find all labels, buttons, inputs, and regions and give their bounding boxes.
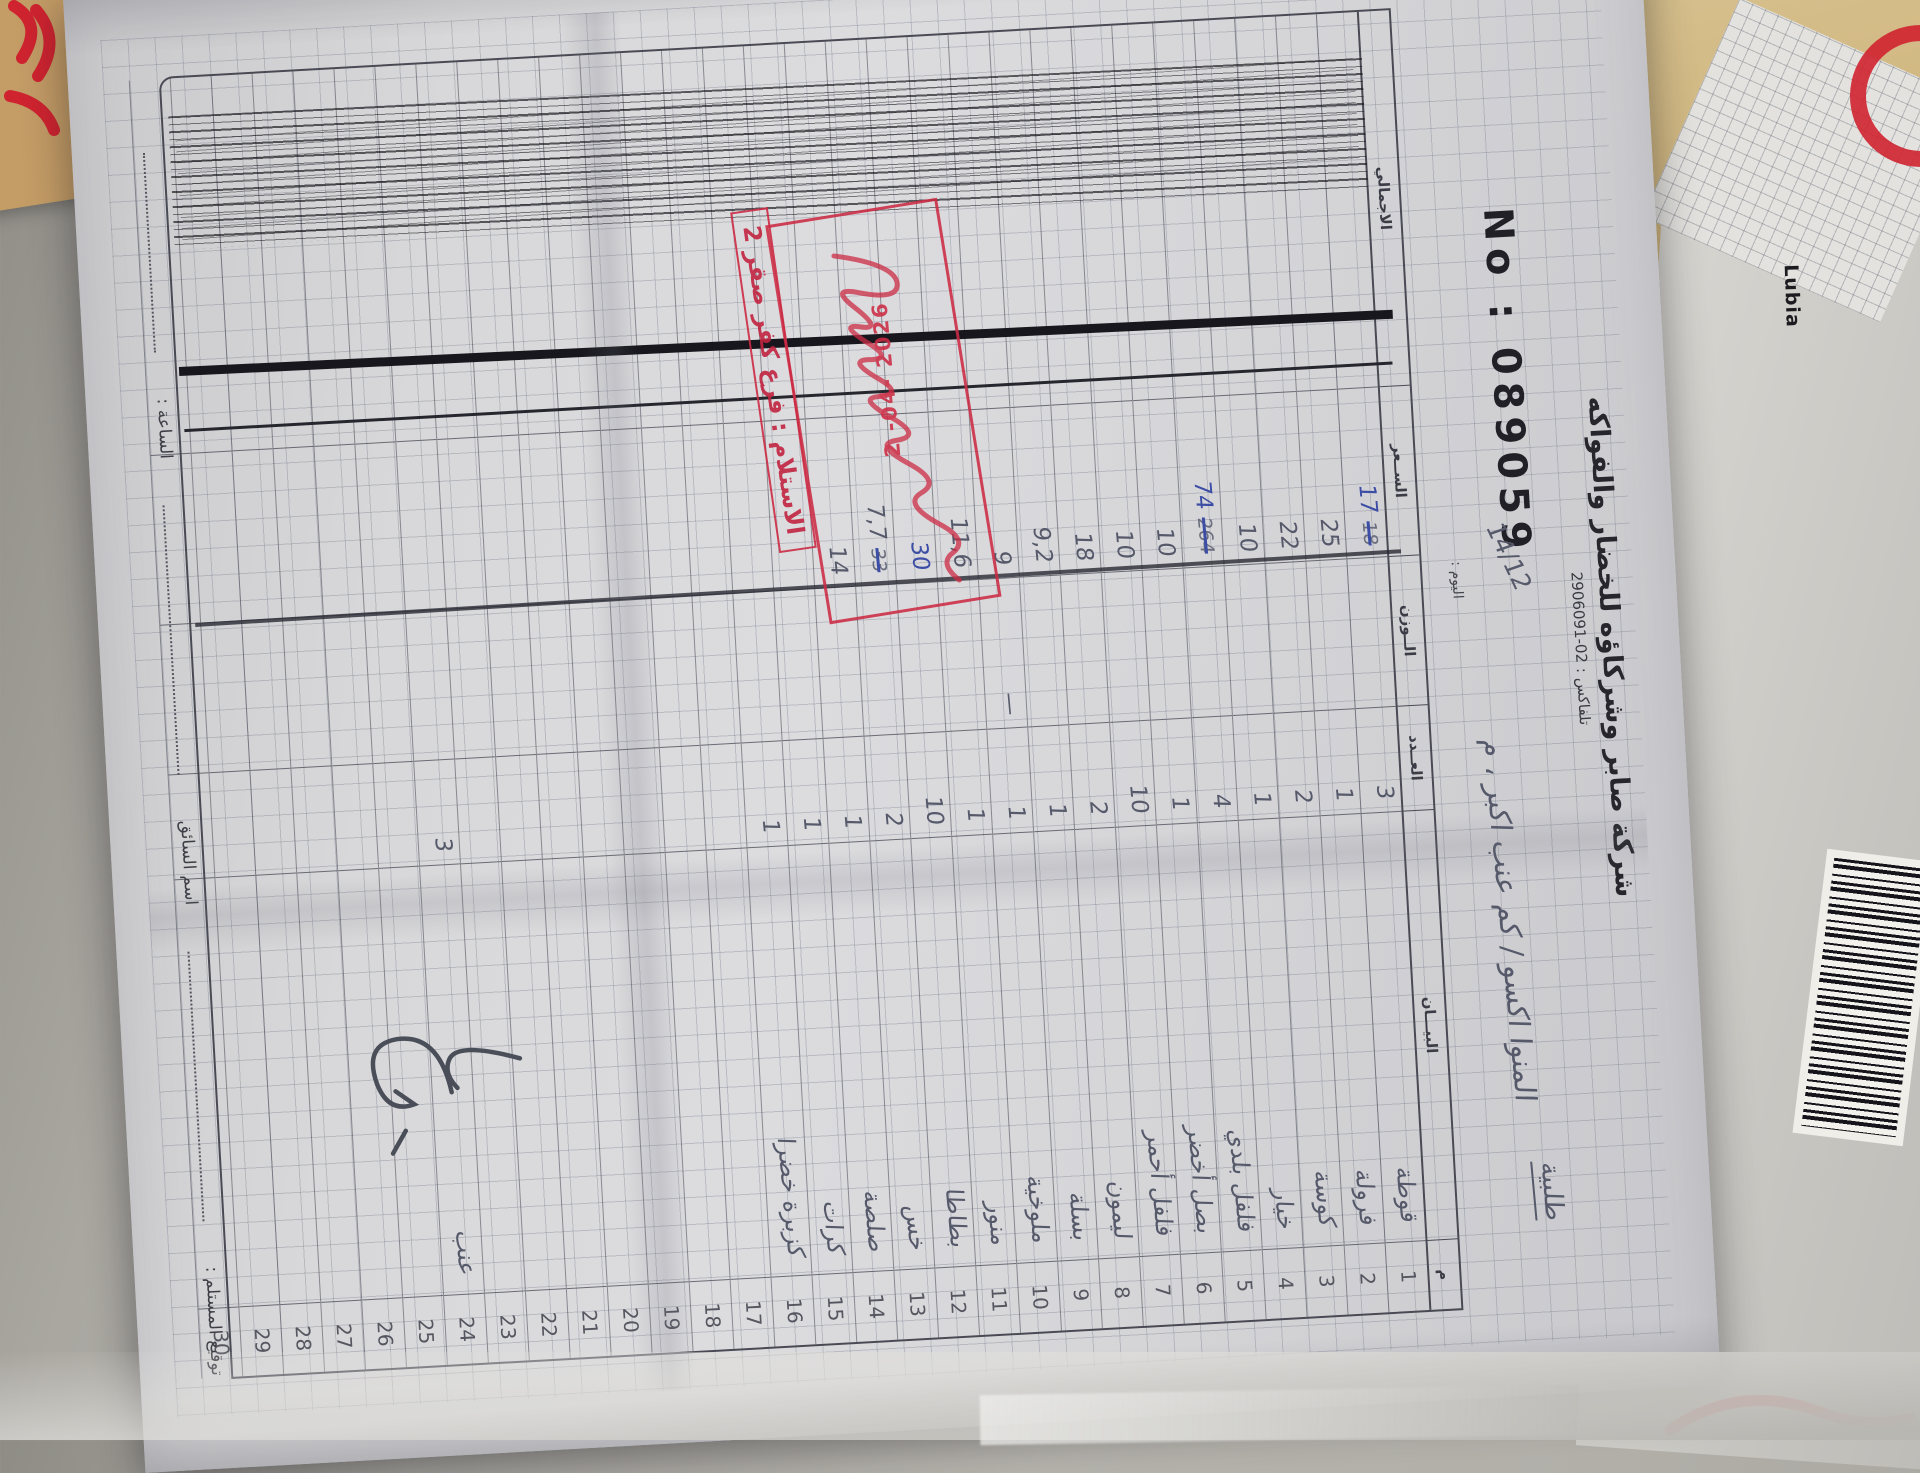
row-number: 16: [772, 1274, 816, 1346]
table-row: 8ليمون218: [1029, 28, 1143, 1328]
item-qty: [209, 770, 255, 877]
document-footer: توقيع المستلم : اسم السائق الساعة :: [135, 77, 228, 1376]
item-qty: 2: [1069, 722, 1115, 829]
table-row: 11منور111,6: [907, 35, 1021, 1335]
item-price: 25: [1297, 389, 1346, 561]
photo-of-invoice: { "company": { "name": "شركة صابر وشركاؤ…: [0, 0, 1920, 1440]
plastic-bag: [0, 1352, 1920, 1440]
row-number: 14: [853, 1270, 897, 1342]
pen-line-thick: [179, 310, 1393, 376]
item-total: [744, 44, 805, 421]
row-number: 17: [731, 1277, 775, 1349]
item-weight: [1184, 565, 1232, 717]
item-weight: [610, 597, 658, 749]
item-total: [334, 67, 395, 444]
item-weight: [856, 584, 904, 736]
item-total: [908, 35, 969, 412]
row-number: 4: [1263, 1247, 1307, 1319]
item-qty: [496, 754, 542, 861]
row-number: 13: [894, 1268, 938, 1340]
row-number: 6: [1181, 1252, 1225, 1324]
item-qty: [169, 772, 215, 879]
item-total: [989, 30, 1050, 407]
item-description: خس: [870, 838, 934, 1270]
recipient-signature: [334, 938, 537, 1178]
row-number: 2: [1345, 1242, 1389, 1314]
item-qty: 1: [1233, 713, 1279, 820]
item-weight: [938, 579, 986, 731]
table-row: 9بسلة19,2: [988, 30, 1102, 1330]
row-number: 11: [976, 1263, 1020, 1335]
item-qty: [619, 747, 665, 854]
item-price: [192, 450, 241, 622]
item-description: بطاطا: [911, 836, 975, 1268]
item-price: 7,733: [847, 414, 896, 586]
row-number: 8: [1099, 1256, 1143, 1328]
item-total: [1071, 26, 1132, 403]
item-price: [478, 434, 527, 606]
item-qty: 1: [1028, 724, 1074, 831]
row-number: 15: [812, 1272, 856, 1344]
driver-name-label: اسم السائق: [176, 820, 201, 906]
table-row: 7فلفل أحمر1010: [1070, 26, 1184, 1326]
table-row: 30: [129, 78, 243, 1378]
item-description: [502, 859, 566, 1291]
item-weight: [365, 611, 413, 763]
company-name: شركة صابر وشركاؤه للخضار والفواكه: [1557, 0, 1665, 1337]
item-price: 10: [1215, 393, 1264, 565]
item-price: [601, 428, 650, 600]
item-total: [212, 74, 273, 451]
item-qty: 1: [783, 738, 829, 845]
item-qty: 1: [1151, 717, 1197, 824]
pen-scribble-column: [168, 58, 1368, 248]
row-number: 21: [567, 1286, 611, 1358]
item-total: [1030, 28, 1091, 405]
table-row: 1قوطة31718: [1316, 12, 1430, 1312]
item-total: [867, 37, 928, 414]
table-row: 20: [538, 55, 652, 1355]
item-price: 11,6: [928, 409, 977, 581]
item-description: ليمون: [1075, 827, 1139, 1259]
dotted-line: [187, 951, 218, 1221]
item-weight: [1143, 568, 1191, 720]
item-description: [215, 875, 279, 1307]
item-price: 74264: [1174, 396, 1223, 568]
item-qty: 2: [864, 733, 910, 840]
item-total: [580, 53, 641, 430]
item-description: [174, 877, 238, 1309]
item-total: [826, 39, 887, 416]
item-weight: [447, 606, 495, 758]
item-qty: [660, 745, 706, 852]
item-qty: 10: [1110, 720, 1156, 827]
item-qty: [578, 749, 624, 856]
col-qty: العــدد: [1398, 704, 1434, 811]
item-description: [707, 847, 771, 1279]
item-total: [171, 76, 232, 453]
item-weight: [774, 588, 822, 740]
table-row: 19: [579, 53, 693, 1353]
item-description: صلصة: [829, 840, 893, 1272]
row-number: 3: [1304, 1245, 1348, 1317]
table-row: 3كوسة222: [1234, 17, 1348, 1317]
item-weight: [897, 581, 945, 733]
table-row: 27: [252, 71, 366, 1371]
item-price: [396, 439, 445, 611]
col-price: الســعر: [1380, 385, 1419, 556]
item-qty: 2: [1274, 710, 1320, 817]
item-total: [948, 33, 1009, 410]
item-description: ملوخية: [993, 831, 1057, 1263]
item-weight: [733, 590, 781, 742]
item-weight: [1102, 570, 1150, 722]
table-row: 17: [661, 49, 775, 1349]
item-total: [130, 78, 191, 455]
row-number: 10: [1017, 1261, 1061, 1333]
table-header-row: م البيـــان العــدد الــوزن الســعر الاج…: [1357, 10, 1462, 1310]
item-price: [151, 453, 200, 625]
item-qty: 1: [987, 727, 1033, 834]
table-row: 29: [170, 76, 284, 1376]
item-description: قوطة: [1362, 811, 1426, 1243]
row-number: 1: [1386, 1240, 1430, 1312]
item-price: 9: [969, 407, 1018, 579]
item-description: فلفل بلدي: [1198, 820, 1262, 1252]
item-price: [765, 418, 814, 590]
handwritten-order-word: طلبية: [1530, 1162, 1570, 1222]
item-price: [560, 430, 609, 602]
item-total: [785, 42, 846, 419]
row-number: 9: [1058, 1258, 1102, 1330]
item-total: [1317, 12, 1378, 389]
item-weight: [1265, 561, 1313, 713]
item-description: فلفل أحمر: [1116, 824, 1180, 1256]
table-row: 28: [211, 74, 325, 1374]
plastic-bag-highlight: [980, 1385, 1581, 1445]
item-weight: [570, 600, 618, 752]
item-total: [1112, 23, 1173, 400]
item-qty: 3: [414, 759, 460, 866]
item-weight: [1306, 558, 1354, 710]
item-price: [437, 437, 486, 609]
item-description: [543, 857, 607, 1289]
item-qty: 4: [1192, 715, 1238, 822]
row-number: 12: [935, 1265, 979, 1337]
table-row: 15كرات1: [743, 44, 857, 1344]
pen-scribble-column-2: [175, 58, 1360, 250]
item-description: بصل أخضر: [1157, 822, 1221, 1254]
table-row: 4خيار110: [1193, 19, 1307, 1319]
handwritten-customer-line: المنوا اكسو / كم عنب اكبر ، م: [1440, 345, 1543, 1103]
item-description: عنب: [420, 863, 484, 1295]
day-label: اليوم :: [1448, 561, 1466, 599]
item-description: خيار: [1239, 818, 1303, 1250]
table-row: 24عنب3: [374, 65, 488, 1365]
item-total: [416, 62, 477, 439]
item-qty: [250, 768, 296, 875]
item-weight: [1224, 563, 1272, 715]
item-weight: [1020, 574, 1068, 726]
col-serial: م: [1427, 1238, 1461, 1310]
table-row: 5فلفل بلدي474264: [1152, 21, 1266, 1321]
scrap-label: Lubia: [1780, 264, 1804, 328]
item-weight: [651, 595, 699, 747]
company-phone: تلفاكس : 02-2906091: [1533, 0, 1628, 1338]
row-number: 18: [690, 1279, 734, 1351]
time-label: الساعة :: [153, 398, 176, 460]
row-number: 20: [608, 1284, 652, 1356]
table-row: 25: [333, 67, 447, 1367]
item-total: [253, 71, 314, 448]
item-weight: [488, 604, 536, 756]
table-row: 13خس27,733: [825, 39, 939, 1339]
table-row: 21: [497, 58, 611, 1358]
dotted-line-3: [143, 152, 170, 353]
item-description: فرولة: [1321, 813, 1385, 1245]
item-weight: [692, 593, 740, 745]
item-qty: [332, 763, 378, 870]
item-qty: 10: [905, 731, 951, 838]
item-total: [1276, 14, 1337, 391]
item-description: [379, 866, 443, 1298]
item-total: [703, 46, 764, 423]
item-price: 18: [1051, 402, 1100, 574]
table-row: 22: [456, 60, 570, 1360]
item-description: كزبرة خضرا: [748, 845, 812, 1277]
item-weight: —: [979, 577, 1027, 729]
item-qty: 3: [1356, 706, 1402, 813]
item-price: [683, 423, 732, 595]
table-row: 23: [415, 62, 529, 1362]
item-description: [297, 870, 361, 1302]
item-price: [233, 448, 282, 620]
item-price: 10: [1092, 400, 1141, 572]
item-description: [584, 854, 648, 1286]
item-qty: [291, 765, 337, 872]
item-total: [293, 69, 354, 446]
item-total: [1153, 21, 1214, 398]
item-description: كوسة: [1280, 815, 1344, 1247]
item-weight: [201, 620, 249, 772]
table-row: 10ملوخية1—9: [947, 33, 1061, 1333]
stamp-signature-script: [778, 209, 998, 620]
table-row: 18: [620, 51, 734, 1351]
pen-line-price-border: [195, 549, 1401, 627]
row-number: 7: [1140, 1254, 1184, 1326]
item-price: 9,2: [1010, 405, 1059, 577]
item-description: [256, 873, 320, 1305]
row-number: 19: [649, 1281, 693, 1353]
item-price: 22: [1256, 391, 1305, 563]
item-weight: [1347, 556, 1395, 708]
item-weight: [242, 618, 290, 770]
item-weight: [406, 609, 454, 761]
col-desc: البيـــان: [1403, 809, 1457, 1240]
item-qty: 1: [946, 729, 992, 836]
item-description: [461, 861, 525, 1293]
item-description: كرات: [788, 843, 852, 1275]
item-qty: [373, 761, 419, 868]
item-price: [273, 446, 322, 618]
row-number: 22: [526, 1288, 570, 1360]
table-body: 1قوطة317182فرولة1253كوسة2224خيار1105فلفل…: [129, 12, 1430, 1379]
pen-line-thin: [184, 362, 1392, 433]
item-price: [724, 421, 773, 593]
table-row: 26: [292, 69, 406, 1369]
item-total: [1194, 19, 1255, 396]
items-table: م البيـــان العــدد الــوزن الســعر الاج…: [159, 8, 1464, 1379]
item-total: [539, 55, 600, 432]
item-price: 10: [1133, 398, 1182, 570]
col-total: الاجمالي: [1359, 10, 1410, 386]
invoice-paper: شركة صابر وشركاؤه للخضار والفواكه تلفاكس…: [63, 0, 1721, 1473]
item-total: [662, 49, 723, 426]
item-qty: 1: [1315, 708, 1361, 815]
item-qty: 1: [824, 736, 870, 843]
item-price: [355, 441, 404, 613]
table-row: 2فرولة125: [1275, 14, 1389, 1314]
item-price: 14: [806, 416, 855, 588]
item-total: [498, 58, 559, 435]
item-weight: [283, 616, 331, 768]
item-weight: [324, 613, 372, 765]
item-price: 30: [888, 412, 937, 584]
item-description: [338, 868, 402, 1300]
table-row: 12بطاطا1030: [866, 37, 980, 1337]
invoice-serial-number: No : 089059: [1474, 206, 1539, 557]
table-row: 16كزبرة خضرا1: [702, 46, 816, 1346]
item-total: [457, 60, 518, 437]
item-description: [625, 852, 689, 1284]
item-price: [314, 444, 363, 616]
item-weight: [815, 586, 863, 738]
table-row: 6بصل أخضر110: [1111, 23, 1225, 1323]
item-price: 1718: [1338, 386, 1387, 558]
handwritten-date: 14/12: [1480, 519, 1538, 594]
item-total: [1235, 17, 1296, 394]
stamp-date: 2 -04- 2026: [867, 300, 905, 458]
item-total: [375, 65, 436, 442]
red-stamp: 2 -04- 2026: [765, 198, 1001, 625]
col-weight: الــوزن: [1389, 554, 1427, 705]
item-description: بسلة: [1034, 829, 1098, 1261]
item-price: [519, 432, 568, 604]
item-qty: 1: [742, 740, 788, 847]
item-description: منور: [952, 834, 1016, 1266]
item-total: [621, 51, 682, 428]
item-weight: [1061, 572, 1109, 724]
row-number: 5: [1222, 1249, 1266, 1321]
invoice-document: شركة صابر وشركاؤه للخضار والفواكه تلفاكس…: [100, 0, 1675, 1418]
item-weight: [160, 623, 208, 775]
item-qty: [537, 752, 583, 859]
item-qty: [455, 756, 501, 863]
table-row: 14صلصة114: [784, 42, 898, 1342]
stamp-branch-line: الاستلام : فرع كفر صقر 2: [730, 207, 817, 553]
item-price: [642, 425, 691, 597]
item-weight: [529, 602, 577, 754]
item-qty: [701, 743, 747, 850]
dotted-line-2: [162, 504, 193, 774]
item-description: [666, 850, 730, 1282]
